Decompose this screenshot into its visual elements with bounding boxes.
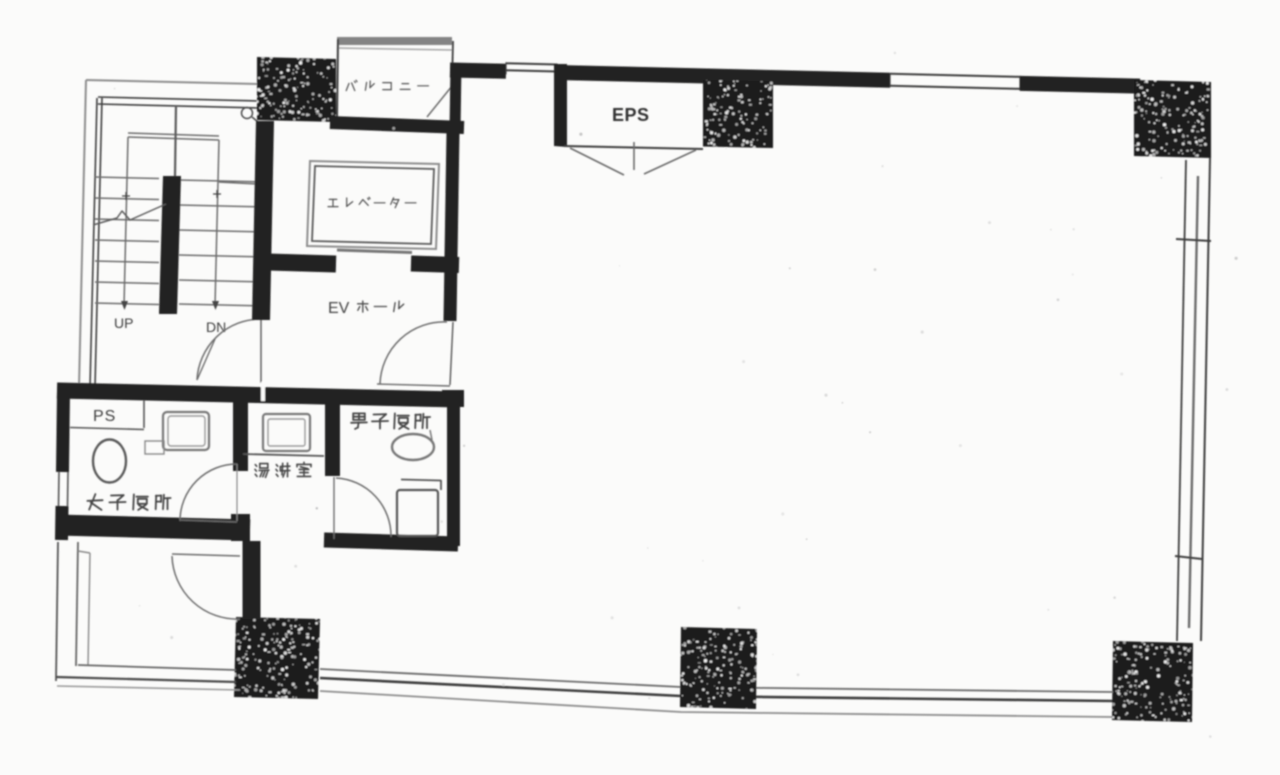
svg-text:PS: PS	[93, 408, 116, 425]
svg-text:DN: DN	[206, 319, 226, 335]
svg-text:EPS: EPS	[612, 105, 650, 125]
svg-text:UP: UP	[114, 315, 133, 331]
svg-text:EV: EV	[328, 300, 350, 317]
